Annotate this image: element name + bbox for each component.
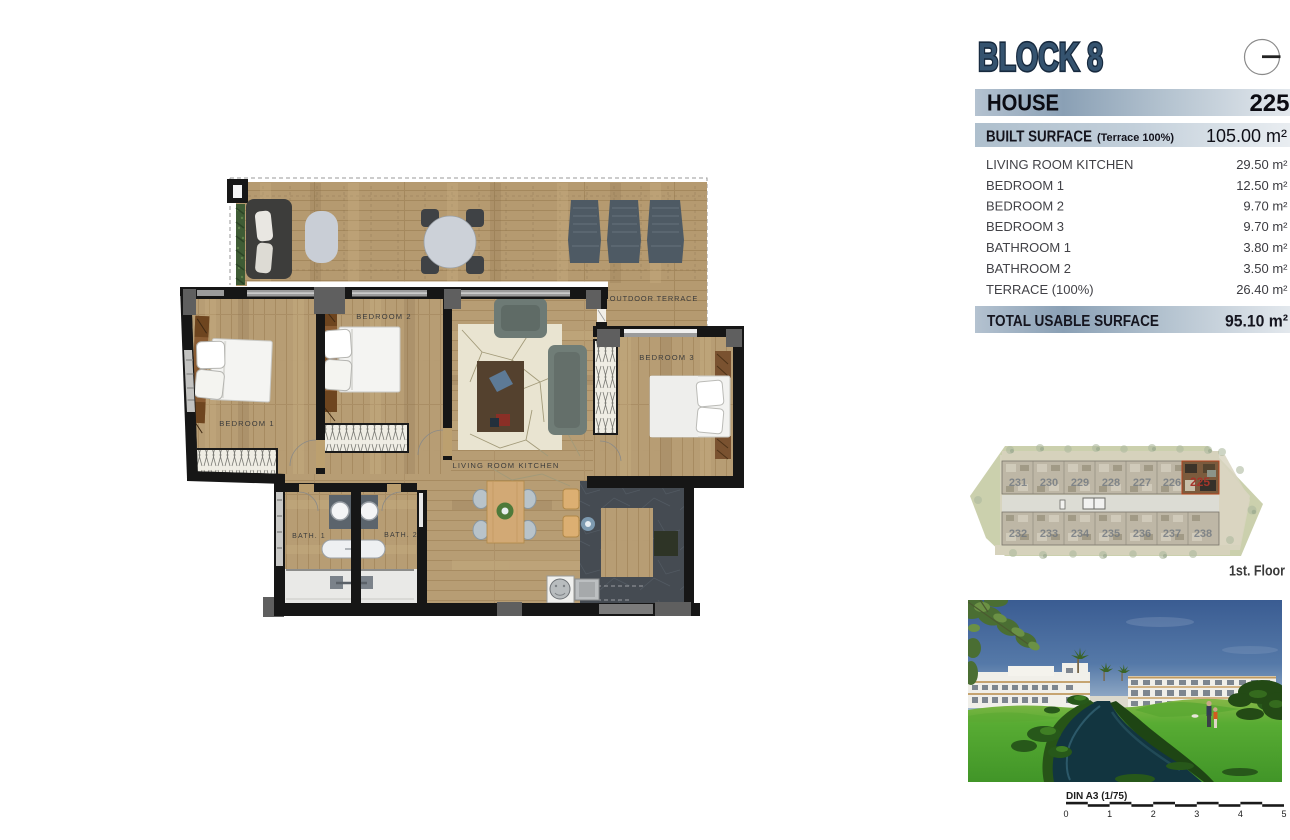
svg-text:229: 229 — [1071, 477, 1089, 489]
svg-text:234: 234 — [1071, 528, 1090, 540]
svg-text:225: 225 — [1190, 475, 1210, 489]
svg-text:2: 2 — [1151, 809, 1156, 819]
svg-text:95.10 m²: 95.10 m² — [1225, 313, 1288, 331]
svg-text:4: 4 — [1238, 809, 1243, 819]
svg-text:3: 3 — [1194, 809, 1199, 819]
svg-text:237: 237 — [1163, 528, 1181, 540]
svg-text:230: 230 — [1040, 477, 1058, 489]
svg-text:1st. Floor: 1st. Floor — [1229, 563, 1285, 580]
svg-text:29.50 m²: 29.50 m² — [1236, 157, 1288, 172]
svg-text:231: 231 — [1009, 477, 1027, 489]
svg-text:TOTAL USABLE SURFACE: TOTAL USABLE SURFACE — [987, 313, 1159, 330]
svg-text:(Terrace 100%): (Terrace 100%) — [1097, 132, 1174, 144]
svg-text:HOUSE: HOUSE — [987, 90, 1059, 116]
svg-text:DIN A3 (1/75): DIN A3 (1/75) — [1066, 791, 1127, 802]
svg-text:OUTDOOR TERRACE: OUTDOOR TERRACE — [610, 294, 699, 303]
svg-text:12.50 m²: 12.50 m² — [1236, 178, 1288, 193]
svg-text:LIVING ROOM KITCHEN: LIVING ROOM KITCHEN — [453, 461, 560, 470]
svg-text:0: 0 — [1063, 809, 1068, 819]
svg-text:236: 236 — [1133, 528, 1151, 540]
svg-text:BATH. 2: BATH. 2 — [384, 532, 418, 539]
svg-text:9.70 m²: 9.70 m² — [1243, 199, 1288, 214]
svg-text:BATHROOM 1: BATHROOM 1 — [986, 240, 1071, 255]
svg-text:9.70 m²: 9.70 m² — [1243, 219, 1288, 234]
svg-text:235: 235 — [1102, 528, 1120, 540]
svg-text:BUILT SURFACE: BUILT SURFACE — [986, 129, 1092, 146]
svg-text:3.50 m²: 3.50 m² — [1243, 261, 1288, 276]
svg-text:105.00 m²: 105.00 m² — [1206, 126, 1287, 146]
svg-text:228: 228 — [1102, 477, 1120, 489]
svg-text:BEDROOM 2: BEDROOM 2 — [986, 199, 1064, 214]
svg-text:BATH. 1: BATH. 1 — [292, 533, 326, 540]
svg-text:26.40 m²: 26.40 m² — [1236, 282, 1288, 297]
svg-text:5: 5 — [1281, 809, 1286, 819]
svg-text:1: 1 — [1107, 809, 1112, 819]
svg-text:226: 226 — [1163, 477, 1181, 489]
svg-text:BEDROOM 1: BEDROOM 1 — [219, 419, 274, 428]
svg-text:BEDROOM 1: BEDROOM 1 — [986, 178, 1064, 193]
svg-text:225: 225 — [1249, 90, 1289, 117]
svg-text:BEDROOM 2: BEDROOM 2 — [356, 312, 411, 321]
svg-text:BLOCK 8: BLOCK 8 — [978, 36, 1103, 80]
svg-text:227: 227 — [1133, 477, 1151, 489]
svg-text:3.80 m²: 3.80 m² — [1243, 240, 1288, 255]
svg-text:238: 238 — [1194, 528, 1212, 540]
svg-text:BATHROOM 2: BATHROOM 2 — [986, 261, 1071, 276]
svg-text:BEDROOM 3: BEDROOM 3 — [639, 353, 694, 362]
svg-text:233: 233 — [1040, 528, 1058, 540]
svg-text:LIVING ROOM KITCHEN: LIVING ROOM KITCHEN — [986, 157, 1133, 172]
svg-text:BEDROOM 3: BEDROOM 3 — [986, 219, 1064, 234]
svg-text:232: 232 — [1009, 528, 1027, 540]
svg-text:TERRACE (100%): TERRACE (100%) — [986, 282, 1094, 297]
